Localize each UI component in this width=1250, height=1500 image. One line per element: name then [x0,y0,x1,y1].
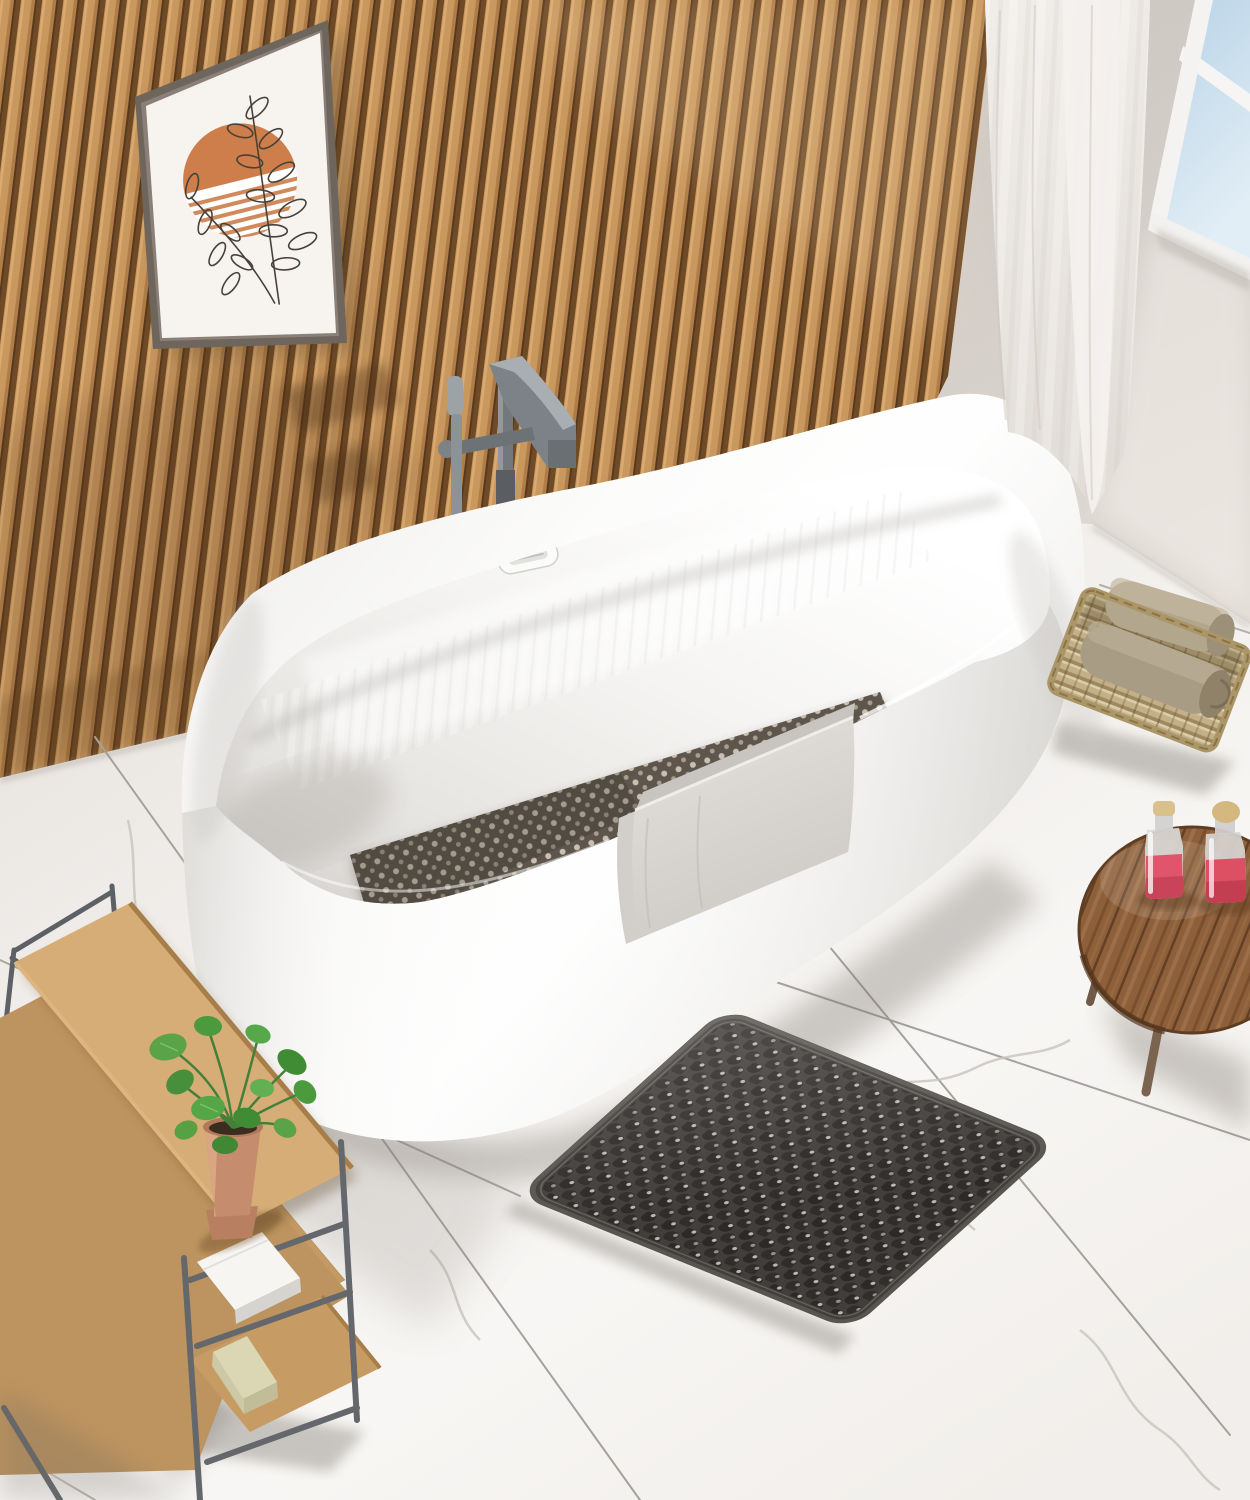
hand-shower-handle [451,414,462,522]
bathroom-scene [0,0,1250,1500]
bottle-cap [1153,801,1175,816]
hand-shower-head [447,376,463,416]
bottle-cap-2 [1212,801,1240,823]
